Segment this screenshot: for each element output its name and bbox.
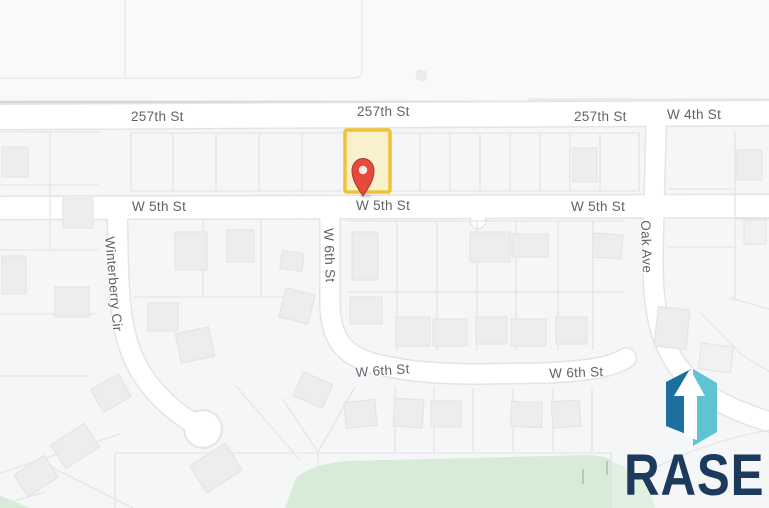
map-canvas[interactable]: 257th St 257th St 257th St W 4th St W 5t… <box>0 0 769 508</box>
logo-arrow-shaft <box>684 393 697 440</box>
map-base-layer <box>0 0 769 508</box>
park-polygon <box>285 455 612 508</box>
pin-hole <box>359 166 367 174</box>
map-background-north <box>0 0 769 101</box>
rase-logo-icon <box>666 369 717 446</box>
cul-de-sac <box>185 411 221 447</box>
park-area <box>0 455 655 508</box>
brand-wordmark: RASE <box>624 447 764 505</box>
road-257th-st <box>0 113 769 117</box>
